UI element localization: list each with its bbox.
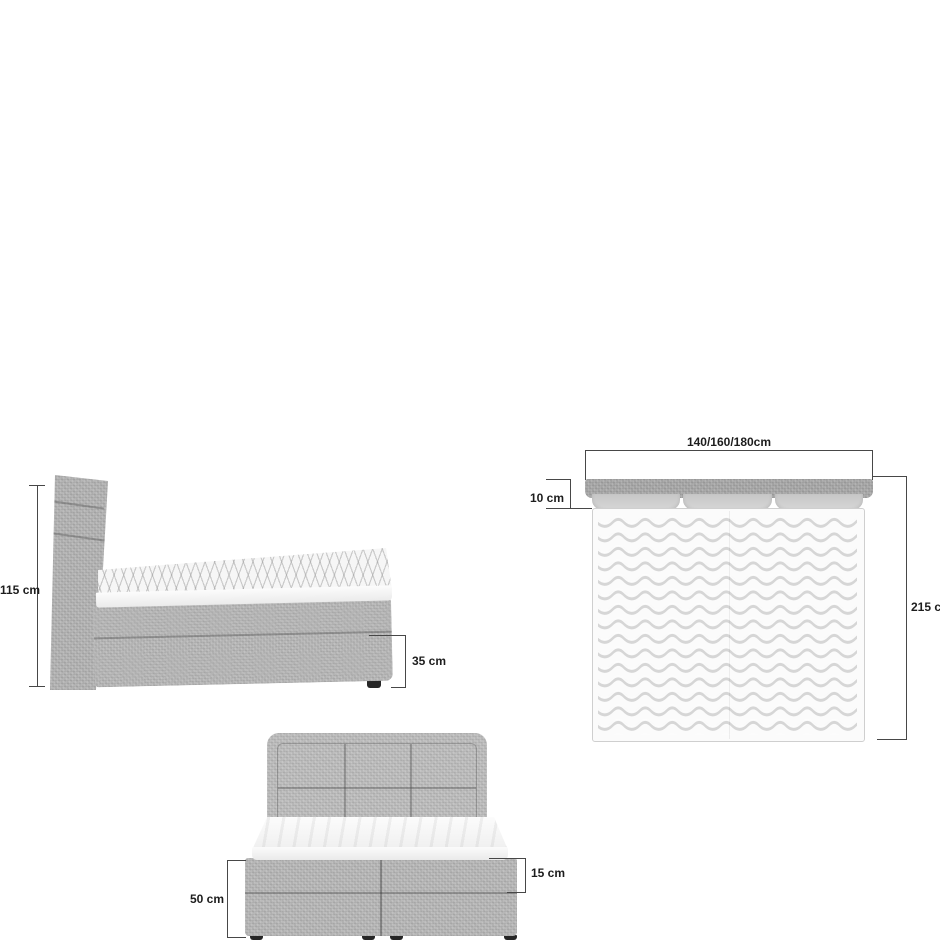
dim-tick	[227, 937, 246, 938]
dim-label-front-drawer: 15 cm	[531, 866, 565, 880]
front-mattress-edge	[252, 847, 508, 860]
top-mattress	[592, 508, 865, 742]
side-headboard-seam	[53, 532, 105, 541]
side-base-seam	[94, 631, 392, 639]
dim-line-headboard-depth	[570, 479, 571, 509]
dim-label-top-width: 140/160/180cm	[585, 435, 873, 449]
front-mattress-top	[252, 817, 508, 850]
dim-tick	[872, 476, 907, 477]
dim-tick	[546, 508, 592, 509]
mattress-wave-quilting	[598, 515, 857, 735]
dim-label-headboard-depth: 10 cm	[518, 491, 564, 505]
front-base-box	[245, 858, 517, 936]
dim-tick	[546, 479, 571, 480]
dim-line-top-length	[906, 476, 907, 740]
dim-label-side-storage: 35 cm	[412, 654, 446, 668]
dim-label-top-length: 215 cm	[911, 600, 940, 614]
dim-tick	[227, 860, 246, 861]
dim-tick	[877, 739, 907, 740]
top-mattress-center-seam	[729, 511, 730, 739]
dim-line-top-width	[585, 450, 873, 451]
side-bed-foot	[367, 680, 381, 688]
bed-dimension-diagram: 115 cm 35 cm 140/160/180cm	[0, 0, 940, 940]
dim-tick	[489, 858, 526, 859]
dim-label-side-height: 115 cm	[0, 583, 40, 597]
dim-tick	[29, 686, 45, 687]
dim-tick	[585, 450, 586, 480]
dim-line-front-drawer	[525, 858, 526, 893]
dim-label-front-base: 50 cm	[178, 892, 224, 906]
side-base-box	[93, 599, 393, 688]
front-base-center-split	[380, 858, 382, 936]
dim-tick	[369, 635, 406, 636]
dim-tick	[391, 687, 406, 688]
dim-line-front-base	[227, 860, 228, 938]
side-headboard-seam	[53, 500, 104, 509]
dim-tick	[507, 892, 526, 893]
headboard-panel-seam	[278, 787, 476, 789]
dim-line-side-storage	[405, 635, 406, 688]
dim-tick	[29, 485, 45, 486]
